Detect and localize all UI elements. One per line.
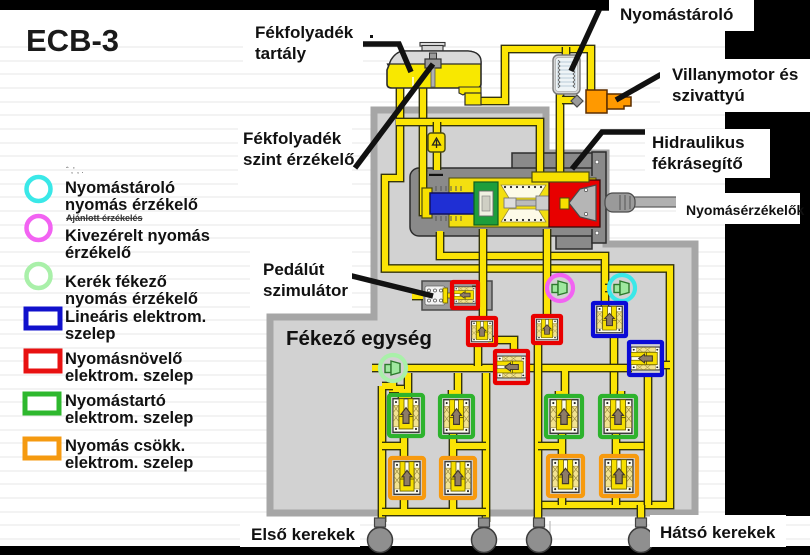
svg-text:Nyomástartó: Nyomástartó (65, 392, 166, 410)
svg-text:nyomás érzékelő: nyomás érzékelő (65, 196, 198, 214)
svg-text:Kerék fékező: Kerék fékező (65, 273, 167, 291)
svg-text:nyomás érzékelő: nyomás érzékelő (65, 290, 198, 308)
svg-text:Ajánlott érzékelés: Ajánlott érzékelés (66, 213, 143, 223)
svg-text:Hidraulikus: Hidraulikus (652, 133, 745, 152)
svg-text:Fékfolyadék: Fékfolyadék (255, 23, 354, 42)
svg-text:Nyomásérzékelők: Nyomásérzékelők (686, 202, 805, 218)
svg-text:Pedálút: Pedálút (263, 260, 325, 279)
svg-text:szint érzékelő: szint érzékelő (243, 150, 355, 169)
svg-text:szimulátor: szimulátor (263, 281, 348, 300)
svg-text:elektrom. szelep: elektrom. szelep (65, 367, 193, 385)
svg-text:érzékelő: érzékelő (65, 244, 131, 262)
svg-text:Hátsó kerekek: Hátsó kerekek (660, 523, 776, 542)
svg-text:Villanymotor és: Villanymotor és (672, 65, 798, 84)
svg-text:Nyomástároló: Nyomástároló (620, 5, 733, 24)
svg-text:ECB-3: ECB-3 (26, 23, 119, 58)
svg-text:szivattyú: szivattyú (672, 86, 745, 105)
svg-text:elektrom. szelep: elektrom. szelep (65, 454, 193, 472)
svg-text:Fékező egység: Fékező egység (286, 327, 432, 350)
svg-text:elektrom. szelep: elektrom. szelep (65, 409, 193, 427)
svg-text:Kivezérelt nyomás: Kivezérelt nyomás (65, 227, 210, 245)
svg-text:Nyomásnövelő: Nyomásnövelő (65, 350, 182, 368)
svg-text:fékrásegítő: fékrásegítő (652, 154, 743, 173)
svg-text:ˆ ,' , .: ˆ ,' , . (66, 166, 84, 175)
svg-text:Lineáris elektrom.: Lineáris elektrom. (65, 308, 206, 326)
svg-text:Nyomás csökk.: Nyomás csökk. (65, 437, 185, 455)
svg-text:Nyomástároló: Nyomástároló (65, 179, 175, 197)
svg-text:tartály: tartály (255, 44, 307, 63)
svg-text:Fékfolyadék: Fékfolyadék (243, 129, 342, 148)
svg-text:Első kerekek: Első kerekek (251, 525, 356, 544)
svg-text:szelep: szelep (65, 325, 115, 343)
